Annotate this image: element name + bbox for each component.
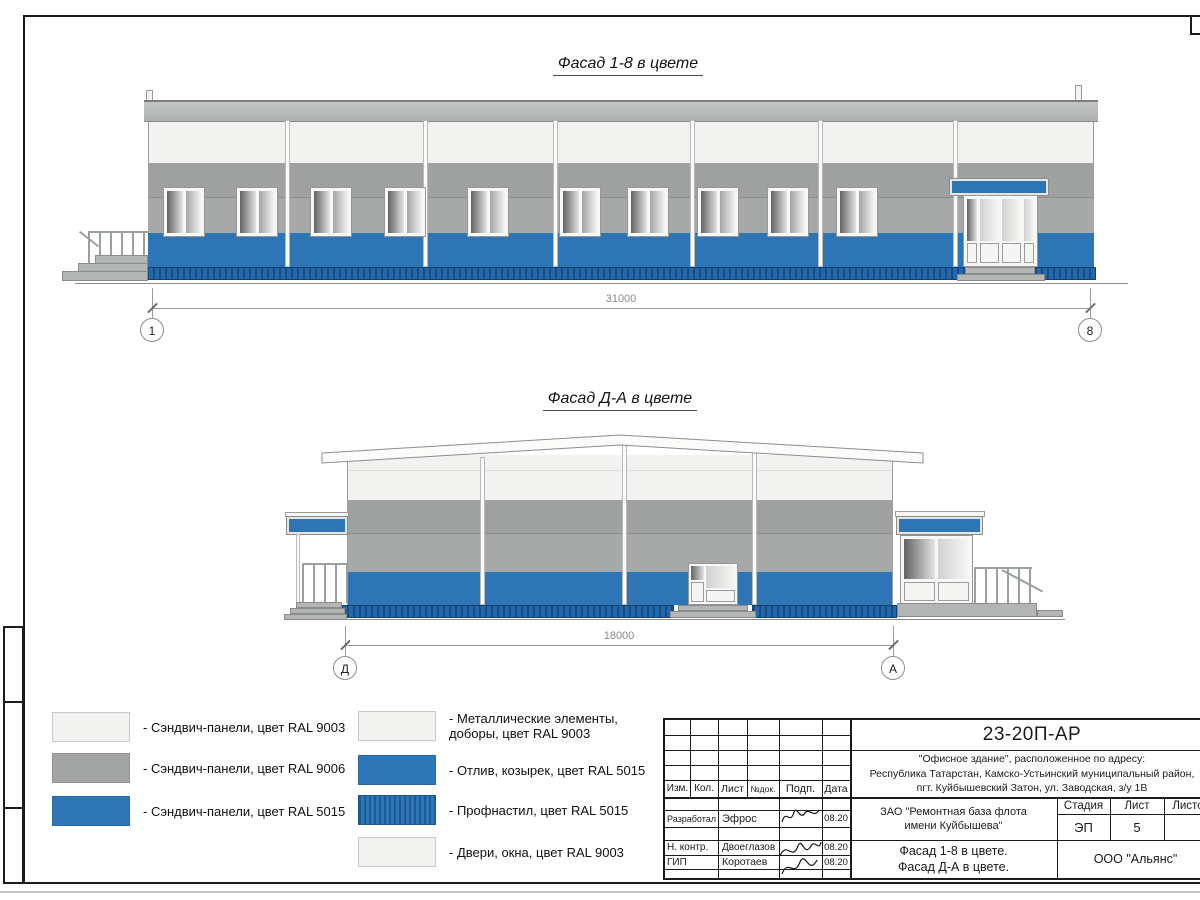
extension-line [1090, 288, 1091, 318]
plinth-facade2-right [752, 605, 897, 618]
swatch-ral9003 [52, 712, 130, 742]
grid-line [665, 735, 850, 736]
stage-value: ЭП [1057, 814, 1110, 840]
facade2-title: Фасад Д-А в цвете [543, 390, 697, 411]
wall-post [285, 120, 290, 267]
wall-seam [348, 470, 892, 471]
legend-label: - Отлив, козырек, цвет RAL 5015 [449, 763, 645, 778]
window [467, 187, 509, 237]
legend-item: - Двери, окна, цвет RAL 9003 [358, 837, 624, 867]
vestibule-canopy [897, 517, 982, 534]
vestibule-platform [897, 603, 1037, 617]
ground-line-facade2 [285, 619, 1065, 620]
signer-date: 08.20 [822, 840, 850, 855]
wall-post [752, 450, 757, 605]
col-header-kol: Кол. [690, 780, 718, 797]
swatch-ral5015 [52, 796, 130, 826]
window [697, 187, 739, 237]
window [559, 187, 601, 237]
stair-step [62, 271, 148, 281]
signer-name: Двоеглазов [722, 840, 779, 855]
roof-cap [144, 100, 1098, 122]
window [836, 187, 878, 237]
window [627, 187, 669, 237]
facade2-door [688, 563, 738, 605]
drawing-sheet: Фасад 1-8 в цвете [0, 0, 1200, 900]
legend-item: - Сэндвич-панели, цвет RAL 9006 [52, 753, 345, 783]
swatch-ral9003 [358, 711, 436, 741]
legend-item: - Металлические элементы, доборы, цвет R… [358, 711, 618, 741]
window [384, 187, 426, 237]
facade1-title: Фасад 1-8 в цвете [553, 55, 703, 76]
project-address: "Офисное здание", расположенное по адрес… [853, 751, 1200, 797]
swatch-ral5015 [358, 755, 436, 785]
dimension-line [152, 308, 1090, 309]
vestibule-window [904, 539, 935, 601]
legend-item: - Сэндвич-панели, цвет RAL 9003 [52, 712, 345, 742]
frame-bottom-border [23, 882, 1200, 884]
roof-fascia [315, 420, 930, 470]
window [310, 187, 352, 237]
grid-line [665, 765, 850, 766]
project-code: 23-20П-АР [850, 720, 1200, 750]
frame-side-box-3 [3, 807, 24, 884]
vestibule-railing [974, 567, 1032, 604]
frame-side-box-1 [3, 626, 24, 703]
gray-band-lower-f2 [348, 533, 892, 572]
signer-role: Н. контр. [667, 840, 718, 855]
vestibule-glazing [900, 535, 973, 605]
legend-label: - Металлические элементы, доборы, цвет R… [449, 711, 618, 741]
entrance-step [965, 267, 1035, 274]
sheet-title: Фасад 1-8 в цвете. Фасад Д-А в цвете. [850, 840, 1057, 878]
stage-label: Стадия [1057, 797, 1110, 814]
col-header-data: Дата [822, 780, 850, 797]
facade2-title-wrap: Фасад Д-А в цвете [347, 390, 893, 411]
wall-post [690, 120, 695, 267]
col-header-list: Лист [718, 780, 747, 797]
signer-role: Разработал [667, 810, 718, 827]
entrance-sidelight [1024, 199, 1034, 263]
wall-post [553, 120, 558, 267]
porch-post [296, 534, 300, 605]
list-value: 5 [1110, 814, 1164, 840]
col-header-podp: Подп. [779, 780, 822, 797]
legend-label: - Двери, окна, цвет RAL 9003 [449, 845, 624, 860]
frame-top-border [23, 15, 1200, 17]
col-header-izm: Изм. [665, 780, 690, 797]
door-leaf [706, 566, 735, 602]
legend-label: - Сэндвич-панели, цвет RAL 9003 [143, 720, 345, 735]
entrance-door-leaf [980, 199, 999, 263]
listov-label: Листов [1164, 797, 1200, 814]
entrance-canopy [950, 179, 1048, 195]
facade1-title-wrap: Фасад 1-8 в цвете [148, 55, 1108, 76]
window [767, 187, 809, 237]
signer-date: 08.20 [822, 810, 850, 827]
signer-name: Эфрос [722, 810, 778, 827]
door-side-panel [691, 566, 704, 602]
swatch-ral9006 [52, 753, 130, 783]
plinth-facade2-left [340, 605, 674, 618]
legend-item: - Отлив, козырек, цвет RAL 5015 [358, 755, 645, 785]
legend-label: - Профнастил, цвет RAL 5015 [449, 803, 628, 818]
entrance-sidelight [967, 199, 977, 263]
axis-bubble-1: 1 [140, 318, 164, 342]
entrance-step [957, 274, 1045, 281]
blue-band-f2 [348, 572, 892, 605]
axis-bubble-8: 8 [1078, 318, 1102, 342]
gray-band-upper-f2 [348, 500, 892, 533]
entrance-door-leaf [1002, 199, 1021, 263]
frame-corner-box [1190, 15, 1200, 35]
window [163, 187, 205, 237]
extension-line [893, 626, 894, 656]
legend-item: - Профнастил, цвет RAL 5015 [358, 795, 628, 825]
axis-bubble-d: Д [333, 656, 357, 680]
swatch-ral9003 [358, 837, 436, 867]
dimension-value: 18000 [345, 630, 893, 642]
signatures [777, 804, 823, 880]
dimension-value: 31000 [152, 293, 1090, 305]
client-name: ЗАО "Ремонтная база флота имени Куйбышев… [850, 797, 1057, 840]
legend-label: - Сэндвич-панели, цвет RAL 5015 [143, 804, 345, 819]
signer-name: Коротаев [722, 855, 779, 869]
entrance-doors [963, 195, 1038, 267]
porch-railing [302, 563, 347, 603]
axis-bubble-a: А [881, 656, 905, 680]
door-step [670, 611, 756, 618]
legend-item: - Сэндвич-панели, цвет RAL 5015 [52, 796, 345, 826]
window [236, 187, 278, 237]
ground-line-facade1 [75, 283, 1128, 284]
sheet-edge-shadow [0, 891, 1200, 893]
col-header-ndok: №док. [747, 780, 779, 797]
signer-role: ГИП [667, 855, 718, 869]
vestibule-step [1037, 610, 1063, 617]
swatch-profnastil [358, 795, 436, 825]
wall-post [480, 457, 485, 605]
legend-label: - Сэндвич-панели, цвет RAL 9006 [143, 761, 345, 776]
title-block: Изм. Кол. Лист №док. Подп. Дата Разработ… [663, 718, 1200, 880]
vestibule-window [938, 539, 969, 601]
frame-side-box-2 [3, 701, 24, 809]
signer-date: 08.20 [822, 855, 850, 869]
wall-post [818, 120, 823, 267]
porch-canopy [287, 517, 347, 534]
plinth-facade1 [146, 267, 1096, 280]
company-name: ООО "Альянс" [1057, 840, 1200, 878]
list-label: Лист [1110, 797, 1164, 814]
dimension-line [345, 645, 893, 646]
